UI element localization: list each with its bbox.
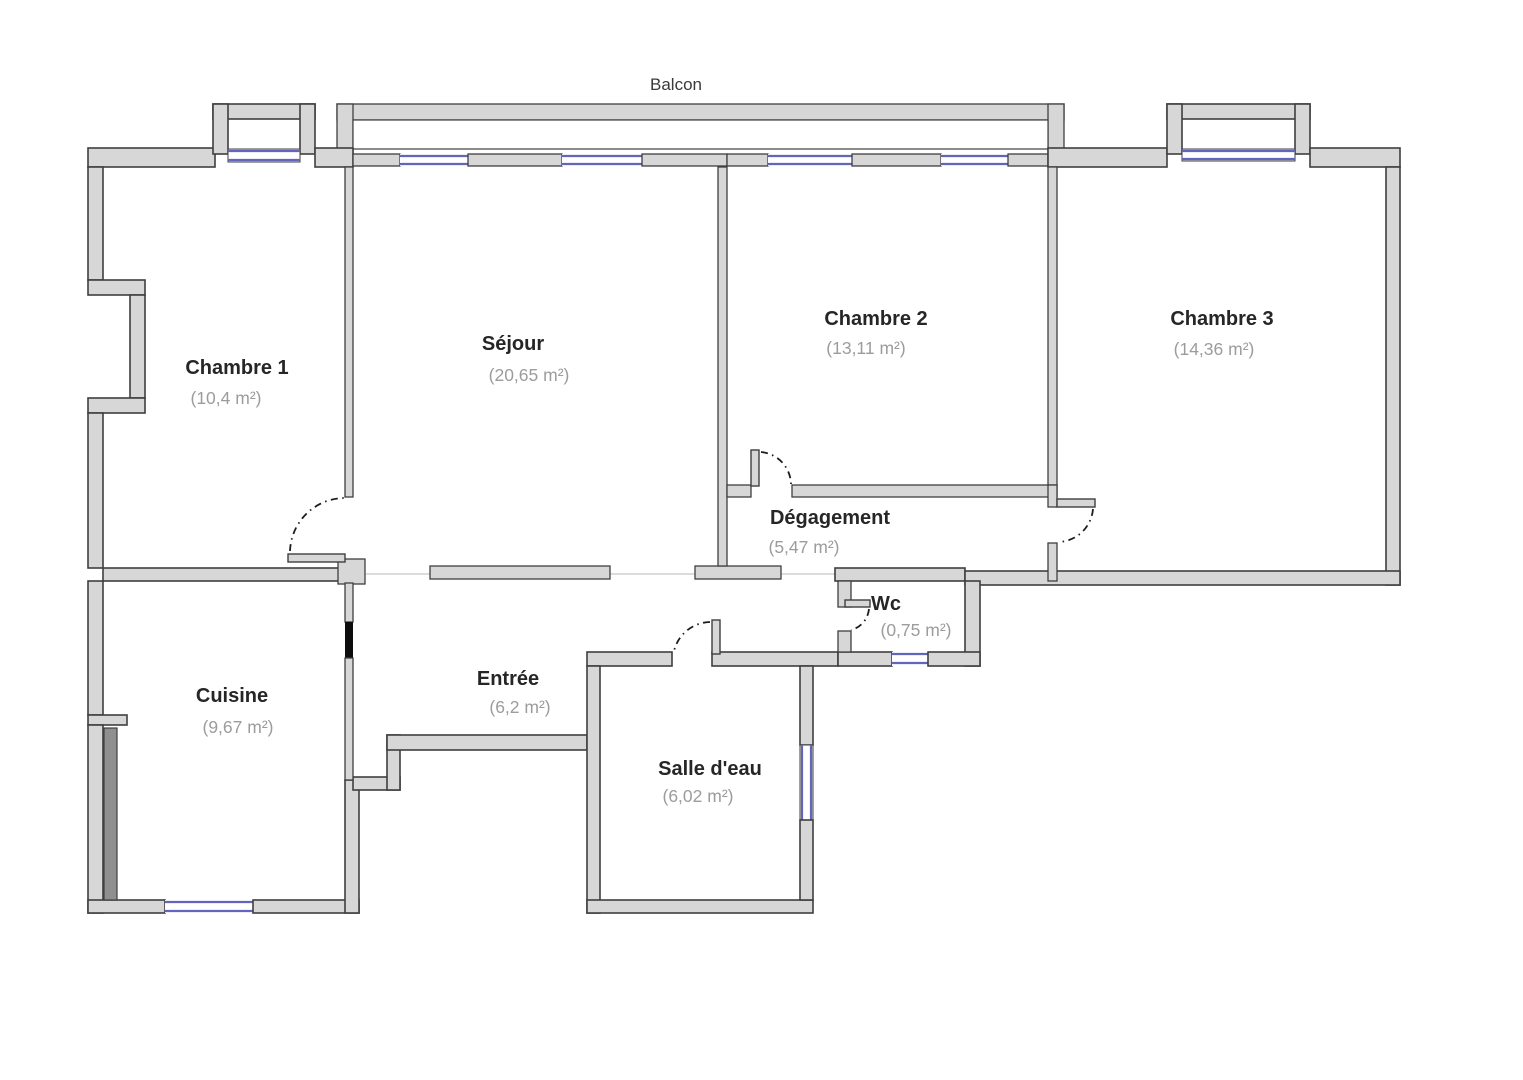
room-label-salledeau: Salle d'eau (658, 758, 762, 780)
wall-chambre3-left (1048, 485, 1057, 507)
room-chambre-3 (1057, 167, 1386, 571)
room-area-chambre3: (14,36 m²) (1174, 339, 1255, 359)
wall-sejour-entree-segment (430, 566, 610, 579)
room-label-wc: Wc (871, 593, 901, 615)
salledeau-right-wall (800, 666, 813, 745)
wc-bottom-wall (928, 652, 980, 666)
left-exterior-wall (88, 725, 103, 913)
alcove1-left-wall (213, 104, 228, 154)
rooms (103, 166, 1386, 900)
salledeau-bottom-wall (587, 900, 813, 913)
room-label-degagement: Dégagement (770, 507, 890, 529)
room-area-chambre2: (13,11 m²) (826, 338, 905, 358)
top-wall-segment (315, 148, 353, 167)
room-area-salledeau: (6,02 m²) (663, 786, 734, 806)
room-cuisine (103, 581, 345, 900)
room-label-sejour: Séjour (482, 333, 544, 355)
cuisine-solid-marker (345, 622, 353, 658)
balcony-top-wall (337, 104, 1064, 120)
top-wall-segment (353, 154, 400, 166)
wall-cuisine-entree (345, 658, 353, 780)
top-wall-segment (88, 148, 215, 167)
top-wall-segment (727, 154, 768, 166)
left-exterior-wall (88, 167, 103, 280)
balcony-label: Balcon (650, 75, 702, 94)
room-area-entree: (6,2 m²) (489, 697, 550, 717)
cuisine-right-exterior-wall (345, 780, 359, 913)
wc-top-wall (835, 568, 965, 581)
room-area-wc: (0,75 m²) (881, 620, 952, 640)
top-wall-segment (1008, 154, 1048, 166)
alcove2-left-wall (1167, 104, 1182, 154)
wall-chambre3-left (1048, 543, 1057, 581)
wall-chambre2-chambre3 (1048, 167, 1057, 485)
wall-degagement-top (792, 485, 1057, 497)
top-wall-segment (1310, 148, 1400, 167)
wall-chambre1-sejour (345, 167, 353, 497)
room-area-cuisine: (9,67 m²) (203, 717, 274, 737)
wall-cuisine-entree (345, 583, 353, 622)
floorplan-canvas: Balcon Chambre 1 (10,4 m²) Séjour (20,65… (0, 0, 1523, 1080)
salledeau-door-leaf (712, 620, 720, 654)
left-exterior-wall (88, 581, 103, 715)
room-label-chambre3: Chambre 3 (1170, 308, 1273, 330)
room-area-degagement: (5,47 m²) (769, 537, 840, 557)
salledeau-left-wall (587, 666, 600, 913)
wc-bottom-wall (838, 652, 892, 666)
room-label-cuisine: Cuisine (196, 685, 268, 707)
salledeau-right-wall (800, 820, 813, 900)
room-label-entree: Entrée (477, 668, 539, 690)
cuisine-bottom-wall (253, 900, 359, 913)
chambre3-bottom-wall (965, 571, 1400, 585)
room-area-chambre1: (10,4 m²) (191, 388, 262, 408)
entree-bottom-wall (387, 735, 587, 750)
balcony-floor (353, 120, 1048, 149)
alcove1-right-wall (300, 104, 315, 154)
top-wall-segment (1048, 148, 1167, 167)
room-salle-deau (600, 666, 800, 900)
salledeau-door-arc (674, 622, 710, 651)
balcony (337, 104, 1064, 155)
room-area-sejour: (20,65 m²) (489, 365, 570, 385)
salledeau-top-wall (587, 652, 672, 666)
salledeau-top-wall (712, 652, 838, 666)
top-wall-segment (642, 154, 727, 166)
top-wall-segment (852, 154, 941, 166)
top-wall-segment (468, 154, 562, 166)
room-wc (851, 581, 965, 652)
wall-degagement-top (727, 485, 751, 497)
cuisine-bottom-wall (88, 900, 165, 913)
wall-sejour-chambre2 (718, 167, 727, 566)
alcove2-top-wall (1167, 104, 1310, 119)
room-label-chambre2: Chambre 2 (824, 308, 927, 330)
room-entree (353, 581, 587, 735)
left-exterior-wall (88, 413, 103, 568)
right-exterior-wall (1386, 167, 1400, 585)
wall-wc-left (838, 631, 851, 652)
alcove2-right-wall (1295, 104, 1310, 154)
wall-chambre1-cuisine (103, 568, 345, 581)
room-label-chambre1: Chambre 1 (185, 357, 288, 379)
